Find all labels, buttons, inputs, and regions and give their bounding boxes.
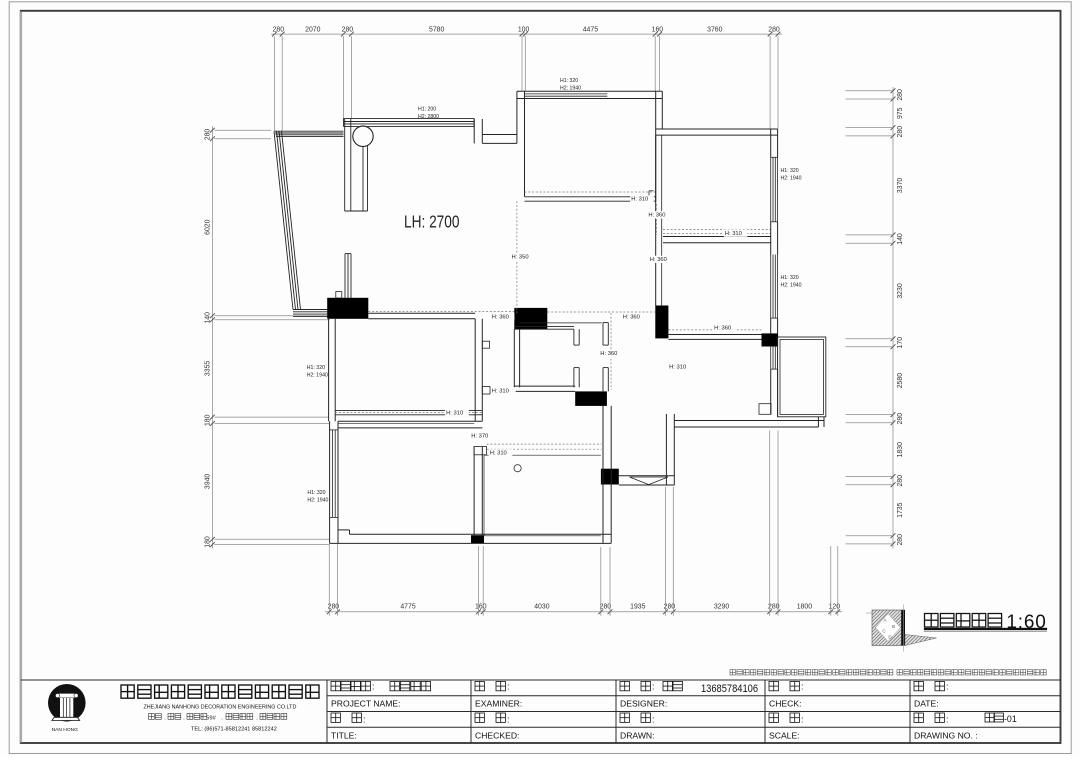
svg-text:180: 180 xyxy=(204,536,211,548)
svg-text:4030: 4030 xyxy=(534,604,549,611)
svg-text:3355: 3355 xyxy=(204,361,211,376)
svg-text:4475: 4475 xyxy=(583,26,598,33)
svg-text:280: 280 xyxy=(897,89,904,101)
svg-text:DRAWING NO. :: DRAWING NO. : xyxy=(914,730,978,740)
svg-text::: : xyxy=(372,682,374,692)
svg-text:280: 280 xyxy=(897,475,904,487)
svg-text:59#: 59# xyxy=(206,716,216,722)
svg-text:ZHEJIANG NANHONG DECORATION EN: ZHEJIANG NANHONG DECORATION ENGINEERING … xyxy=(144,705,297,711)
svg-text:H: 360: H: 360 xyxy=(623,314,640,320)
svg-text:DESIGNER:: DESIGNER: xyxy=(620,699,667,709)
svg-text:H: 310: H: 310 xyxy=(631,197,648,203)
svg-text::: : xyxy=(507,682,509,692)
svg-text:13685784106: 13685784106 xyxy=(701,683,758,695)
svg-text::: : xyxy=(363,714,365,724)
svg-text:170: 170 xyxy=(897,337,904,349)
svg-text:140: 140 xyxy=(897,233,904,245)
svg-text:H: 360: H: 360 xyxy=(492,314,509,320)
svg-text:1800: 1800 xyxy=(797,604,812,611)
svg-text:TEL: (86)571-85812241 85812: TEL: (86)571-85812241 85812242 xyxy=(191,727,277,733)
svg-text:H1: 200: H1: 200 xyxy=(418,107,436,113)
svg-text:100: 100 xyxy=(518,26,530,33)
svg-text:6020: 6020 xyxy=(204,219,211,234)
svg-text:H: 360: H: 360 xyxy=(648,213,665,219)
svg-text:160: 160 xyxy=(652,26,664,33)
svg-text:H: 360: H: 360 xyxy=(650,257,667,263)
svg-text:280: 280 xyxy=(897,413,904,425)
svg-text:CHECK:: CHECK: xyxy=(769,699,801,709)
svg-text:H1: 320: H1: 320 xyxy=(307,490,325,496)
svg-text:H1: 320: H1: 320 xyxy=(781,275,799,281)
svg-text:H1: 320: H1: 320 xyxy=(560,78,578,84)
svg-text:DRAWN:: DRAWN: xyxy=(620,730,655,740)
svg-text:EXAMINER:: EXAMINER: xyxy=(475,699,522,709)
svg-text:3940: 3940 xyxy=(204,474,211,489)
svg-text:5780: 5780 xyxy=(429,26,444,33)
svg-text:DATE:: DATE: xyxy=(914,699,939,709)
svg-text:1830: 1830 xyxy=(897,442,904,457)
svg-text:H2: 1940: H2: 1940 xyxy=(560,86,581,92)
svg-text:TITLE:: TITLE: xyxy=(331,730,357,740)
svg-text:H: 310: H: 310 xyxy=(669,365,686,371)
svg-text:280: 280 xyxy=(897,126,904,138)
svg-text::: : xyxy=(946,714,948,724)
svg-text:3290: 3290 xyxy=(714,604,729,611)
svg-text:SCALE:: SCALE: xyxy=(769,730,800,740)
svg-text:140: 140 xyxy=(204,312,211,324)
svg-text:NAN HONG: NAN HONG xyxy=(52,727,79,733)
svg-text:H: 310: H: 310 xyxy=(446,410,463,416)
svg-text:3760: 3760 xyxy=(707,26,722,33)
svg-text::: : xyxy=(801,682,803,692)
svg-text:1735: 1735 xyxy=(897,502,904,517)
svg-text:280: 280 xyxy=(768,26,780,33)
svg-text:2070: 2070 xyxy=(305,26,320,33)
svg-text:1935: 1935 xyxy=(630,604,645,611)
svg-text:280: 280 xyxy=(273,26,285,33)
svg-text::: : xyxy=(652,714,654,724)
svg-text:280: 280 xyxy=(897,534,904,546)
svg-text::: : xyxy=(946,682,948,692)
svg-text:975: 975 xyxy=(897,107,904,119)
svg-text:H: 310: H: 310 xyxy=(725,231,742,237)
svg-text:CHECKED:: CHECKED: xyxy=(475,730,519,740)
svg-text:3370: 3370 xyxy=(897,178,904,193)
svg-text:B: B xyxy=(892,624,895,629)
svg-text:H: 310: H: 310 xyxy=(490,451,507,457)
svg-text:PROJECT NAME:: PROJECT NAME: xyxy=(331,699,401,709)
svg-text:H: 370: H: 370 xyxy=(471,433,488,439)
svg-text:LH: 2700: LH: 2700 xyxy=(404,211,460,231)
svg-text:H: 360: H: 360 xyxy=(714,326,731,332)
svg-text:2580: 2580 xyxy=(897,373,904,388)
svg-text::: : xyxy=(507,714,509,724)
svg-text:280: 280 xyxy=(600,604,612,611)
svg-text:H2: 1940: H2: 1940 xyxy=(307,373,328,379)
svg-text:4775: 4775 xyxy=(400,604,415,611)
svg-text:H1: 320: H1: 320 xyxy=(781,168,799,174)
svg-text:280: 280 xyxy=(204,129,211,141)
svg-text:180: 180 xyxy=(204,414,211,426)
svg-text:280: 280 xyxy=(342,26,354,33)
svg-text:120: 120 xyxy=(829,604,841,611)
svg-text:H1: 320: H1: 320 xyxy=(307,365,325,371)
svg-text:H: 360: H: 360 xyxy=(600,351,617,357)
svg-text::: : xyxy=(801,714,803,724)
svg-text:H: 310: H: 310 xyxy=(492,388,509,394)
svg-text:-01: -01 xyxy=(1004,714,1017,724)
svg-text:H2: 1940: H2: 1940 xyxy=(781,283,802,289)
svg-text::: : xyxy=(652,682,654,692)
svg-text:H2: 1940: H2: 1940 xyxy=(307,498,328,504)
svg-text:H2: 2800: H2: 2800 xyxy=(418,114,439,120)
svg-text:H: 350: H: 350 xyxy=(512,255,529,261)
svg-text:3230: 3230 xyxy=(897,283,904,298)
svg-text:160: 160 xyxy=(475,604,487,611)
svg-text:H2: 1940: H2: 1940 xyxy=(781,176,802,182)
